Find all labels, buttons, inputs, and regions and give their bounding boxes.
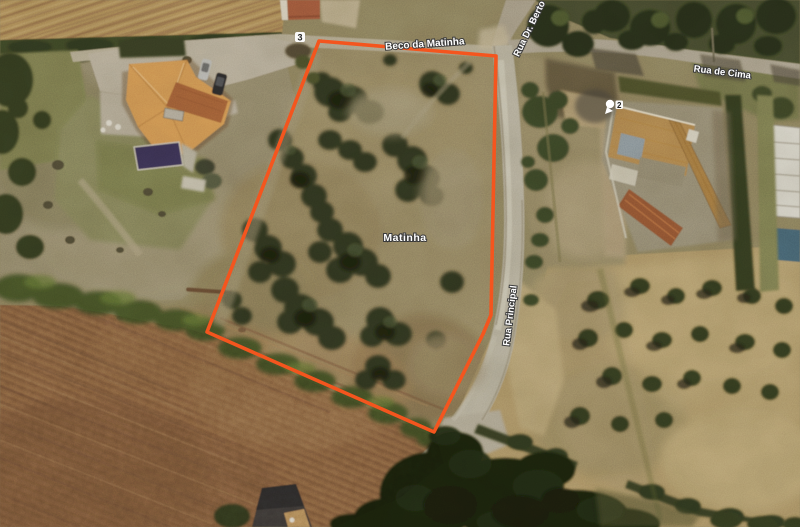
svg-text:Matinha: Matinha	[383, 232, 426, 244]
svg-text:2: 2	[617, 101, 622, 110]
svg-text:3: 3	[297, 33, 302, 43]
